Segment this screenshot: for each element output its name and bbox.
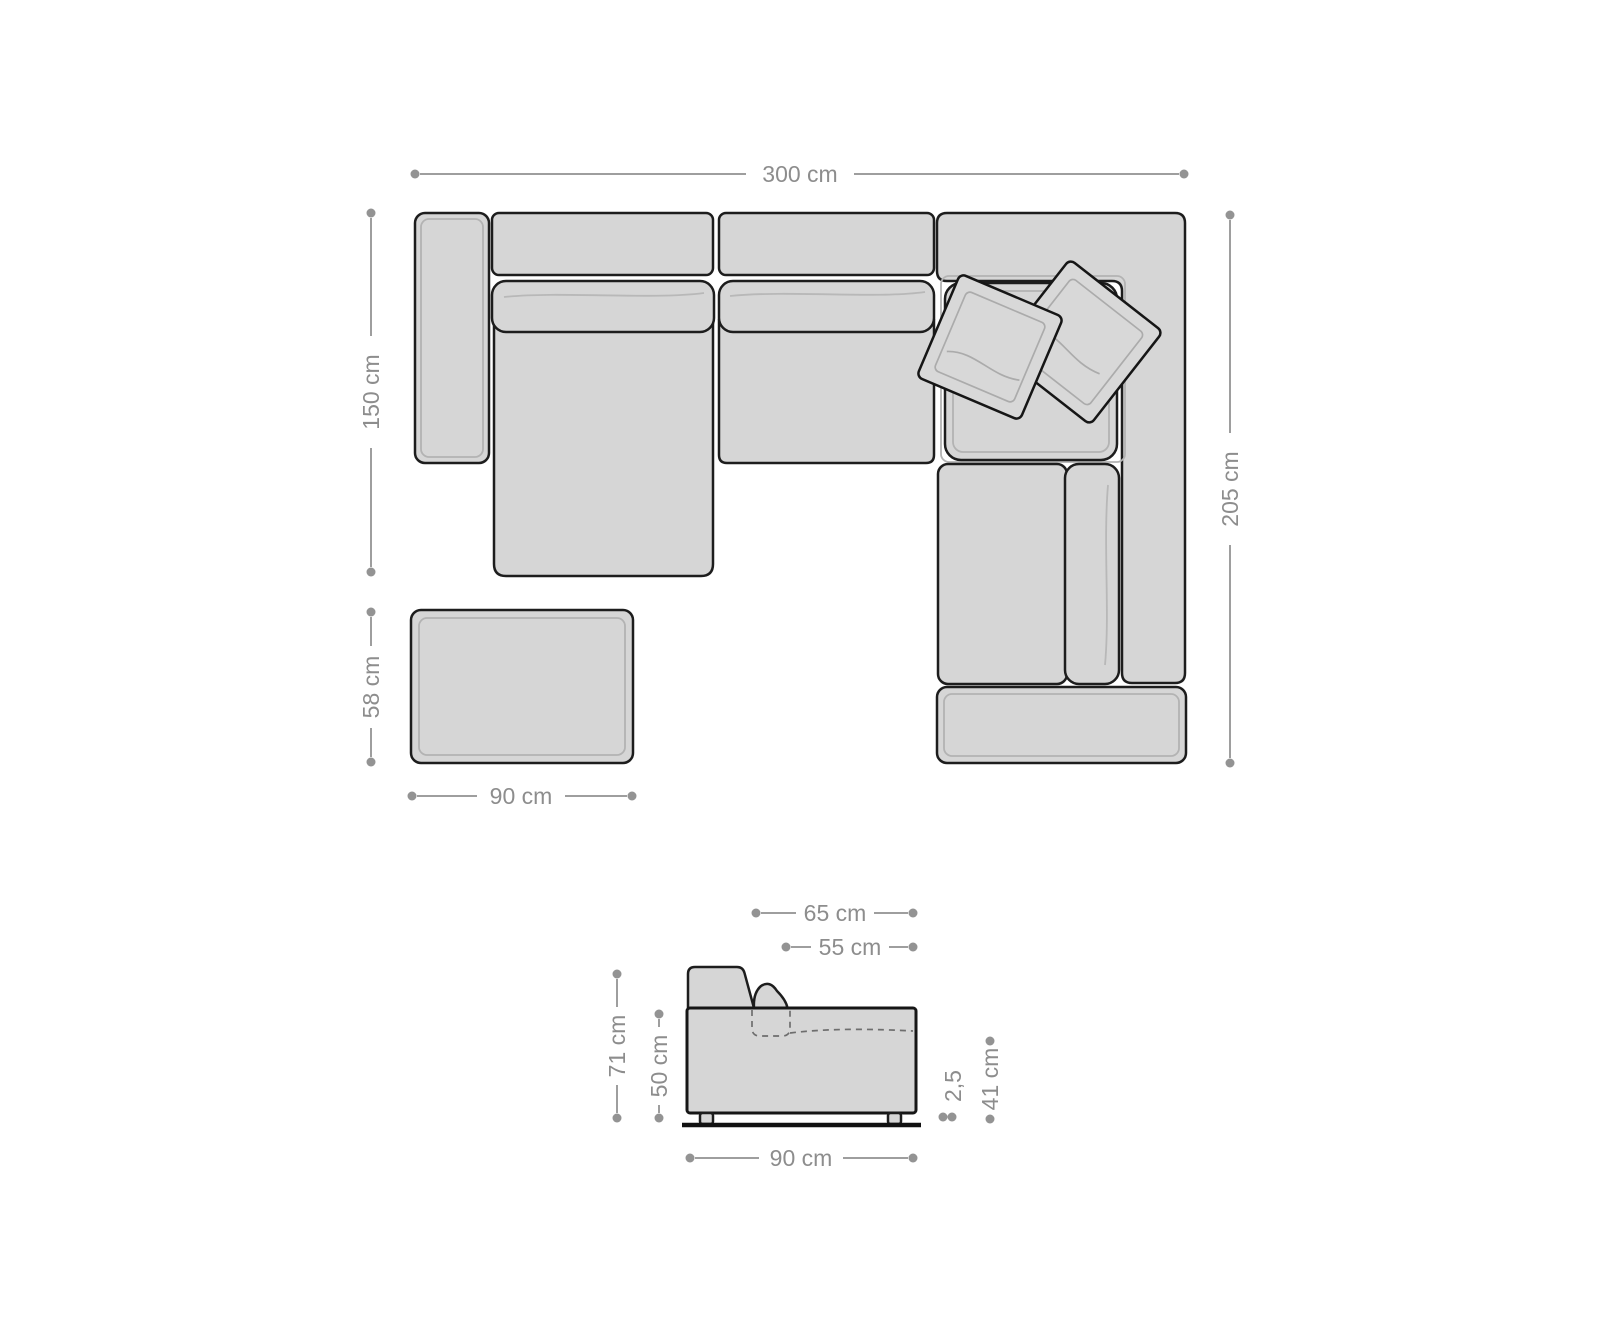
dim-seat-height: 41 cm [977, 1037, 1003, 1124]
sofa-dimension-drawing: 300 cm 150 cm 205 cm [0, 0, 1600, 1333]
dim-dot [1180, 170, 1189, 179]
dim-ottoman-depth: 58 cm [358, 608, 384, 767]
side-leg-left [700, 1113, 713, 1124]
dim-dot [909, 909, 918, 918]
backrest-section-1 [492, 213, 713, 275]
dim-label-seat-height: 41 cm [977, 1048, 1003, 1111]
seat-cushion-2 [719, 281, 934, 332]
dim-dot [909, 943, 918, 952]
sofa-side-view: 65 cm 55 cm 71 cm 50 cm [604, 900, 1003, 1171]
dim-dot [411, 170, 420, 179]
dim-dot [782, 943, 791, 952]
backrest-section-2 [719, 213, 934, 275]
dim-label-ottoman-depth: 58 cm [358, 656, 384, 719]
dim-seat-depth: 55 cm [782, 934, 918, 960]
dim-dot [1226, 759, 1235, 768]
dim-dot [367, 608, 376, 617]
dim-dot [909, 1154, 918, 1163]
right-seat-panel [938, 464, 1067, 684]
dim-dot [986, 1037, 995, 1046]
dim-total-height: 71 cm [604, 970, 630, 1123]
dimension-diagram-page: 300 cm 150 cm 205 cm [0, 0, 1600, 1333]
ottoman-body [411, 610, 633, 763]
dim-label-total-height: 71 cm [604, 1015, 630, 1078]
dim-total-width: 300 cm [411, 161, 1189, 187]
dim-dot [367, 568, 376, 577]
dim-dot [628, 792, 637, 801]
dim-label-chaise-depth: 150 cm [358, 354, 384, 429]
dim-label-total-depth: 205 cm [1217, 451, 1243, 526]
side-backrest [688, 967, 754, 1008]
dim-label-total-width: 300 cm [762, 161, 837, 187]
dim-dot [613, 1114, 622, 1123]
chaise-longue-seat [494, 320, 713, 576]
dim-total-depth: 205 cm [1217, 211, 1243, 768]
dim-ottoman-width: 90 cm [408, 783, 637, 809]
dim-side-width: 90 cm [686, 1145, 918, 1171]
dim-dot [367, 758, 376, 767]
dim-dot [655, 1114, 664, 1123]
dim-dot [752, 909, 761, 918]
bottom-armrest [937, 687, 1186, 763]
dim-chaise-depth: 150 cm [358, 209, 384, 577]
dim-backrest-depth: 65 cm [752, 900, 918, 926]
dim-dot [367, 209, 376, 218]
dim-dot [948, 1113, 957, 1122]
seat-cushion-1 [492, 281, 714, 332]
right-back-cushion [1065, 464, 1119, 684]
ottoman-top-view: 58 cm 90 cm [358, 608, 637, 810]
dim-leg-height: 2,5 [939, 1070, 967, 1121]
dim-label-body-height: 50 cm [646, 1035, 672, 1098]
dim-label-side-width: 90 cm [770, 1145, 833, 1171]
dim-dot [686, 1154, 695, 1163]
dim-label-backrest-depth: 65 cm [804, 900, 867, 926]
dim-dot [655, 1010, 664, 1019]
dim-dot [986, 1115, 995, 1124]
dim-label-ottoman-width: 90 cm [490, 783, 553, 809]
dim-label-leg-height: 2,5 [940, 1070, 966, 1102]
side-pillow [754, 984, 788, 1008]
dim-label-seat-depth: 55 cm [819, 934, 882, 960]
dim-dot [939, 1113, 948, 1122]
dim-dot [1226, 211, 1235, 220]
side-body [687, 1008, 916, 1113]
middle-seat [719, 320, 934, 463]
side-leg-right [888, 1113, 901, 1124]
dim-dot [613, 970, 622, 979]
dim-dot [408, 792, 417, 801]
left-armrest [415, 213, 489, 463]
dim-body-height: 50 cm [646, 1010, 672, 1123]
